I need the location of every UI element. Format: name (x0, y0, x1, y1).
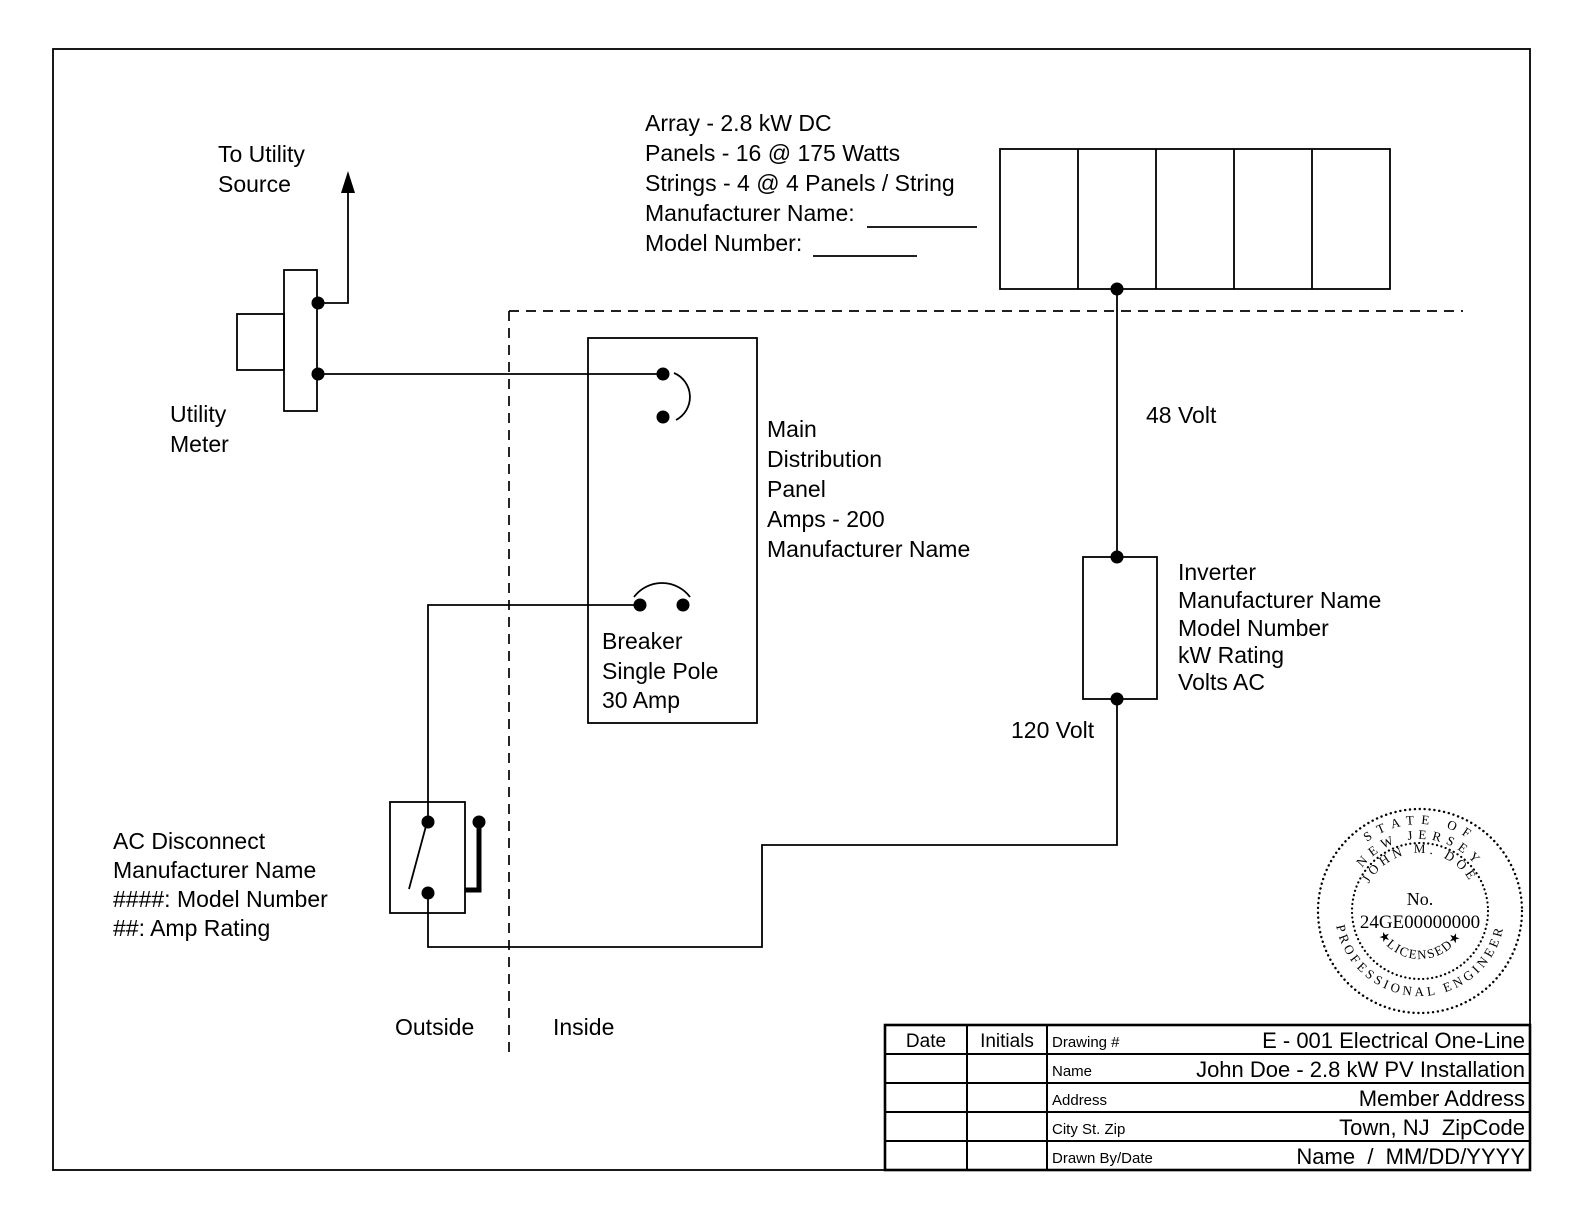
title-block-date-header: Date (906, 1031, 946, 1052)
main-panel-note-line3: Panel (767, 476, 826, 502)
main-breaker-arc (674, 373, 690, 420)
to-utility-source-label-line2: Source (218, 171, 291, 197)
pv-breaker-arc (634, 583, 690, 597)
array-notes: Array - 2.8 kW DC Panels - 16 @ 175 Watt… (645, 110, 977, 256)
ac-disconnect-symbol (390, 802, 486, 913)
stamp-license-number: 24GE00000000 (1360, 912, 1480, 933)
to-utility-source-label-line1: To Utility (218, 141, 305, 167)
main-panel-note-line1: Main (767, 416, 817, 442)
title-block-label-address: Address (1052, 1092, 1107, 1109)
title-block-label-drawing: Drawing # (1052, 1034, 1120, 1051)
title-block-initials-header: Initials (980, 1031, 1034, 1052)
engineer-stamp: STATE OF NEW JERSEY JOHN M. DOE No. 24GE… (1318, 809, 1522, 1013)
inverter-note-line2: Manufacturer Name (1178, 587, 1381, 613)
utility-meter-label-line1: Utility (170, 401, 227, 427)
pv-breaker-dot-right (677, 599, 690, 612)
arrowhead-up-icon (341, 171, 355, 193)
title-block-label-name: Name (1052, 1063, 1092, 1080)
main-panel-note-line2: Distribution (767, 446, 882, 472)
array-note-line4: Manufacturer Name: (645, 200, 855, 226)
breaker-note-line2: Single Pole (602, 658, 718, 684)
electrical-one-line-drawing: Outside Inside Utility Meter To Utility … (0, 0, 1584, 1224)
to-utility-arrow (318, 171, 355, 303)
title-block-value-address: Member Address (1359, 1086, 1525, 1111)
inverter-note-line1: Inverter (1178, 559, 1256, 585)
ac-disconnect-notes: AC Disconnect Manufacturer Name ####: Mo… (113, 828, 328, 941)
main-breaker-dot-top (657, 368, 670, 381)
inverter-note-line4: kW Rating (1178, 642, 1284, 668)
utility-feed-wire (318, 193, 348, 303)
disconnect-terminal-dot-bottom (422, 887, 435, 900)
title-block-value-city: Town, NJ ZipCode (1339, 1115, 1525, 1140)
title-block-value-drawing: E - 001 Electrical One-Line (1262, 1028, 1525, 1053)
inverter-note-line5: Volts AC (1178, 669, 1265, 695)
inverter-terminal-dot-top (1111, 551, 1124, 564)
utility-meter-symbol (237, 270, 325, 411)
disconnect-handle-bracket (465, 826, 479, 890)
inverter-outline (1083, 557, 1157, 699)
array-note-line2: Panels - 16 @ 175 Watts (645, 140, 900, 166)
array-note-line5: Model Number: (645, 230, 802, 256)
stamp-no-label: No. (1407, 889, 1434, 909)
pv-array-symbol (1000, 149, 1390, 296)
meter-body (284, 270, 317, 411)
breaker-note-line1: Breaker (602, 628, 683, 654)
array-note-line1: Array - 2.8 kW DC (645, 110, 832, 136)
breaker-note-line3: 30 Amp (602, 687, 680, 713)
inverter-notes: Inverter Manufacturer Name Model Number … (1178, 559, 1381, 695)
ac-voltage-label: 120 Volt (1011, 717, 1095, 743)
breaker-notes: Breaker Single Pole 30 Amp (602, 628, 718, 713)
ac-disconnect-note-line4: ##: Amp Rating (113, 915, 270, 941)
title-block-value-drawnby: Name / MM/DD/YYYY (1296, 1144, 1525, 1169)
array-note-line3: Strings - 4 @ 4 Panels / String (645, 170, 955, 196)
drawing-canvas: Outside Inside Utility Meter To Utility … (0, 0, 1584, 1224)
main-panel-notes: Main Distribution Panel Amps - 200 Manuf… (767, 416, 970, 562)
disconnect-switch-blade (409, 826, 426, 889)
meter-face (237, 314, 284, 370)
main-panel-note-line4: Amps - 200 (767, 506, 885, 532)
ac-disconnect-note-line1: AC Disconnect (113, 828, 266, 854)
inverter-note-line3: Model Number (1178, 615, 1329, 641)
outside-zone-label: Outside (395, 1014, 474, 1040)
inside-zone-label: Inside (553, 1014, 614, 1040)
title-block: Date Initials Drawing # E - 001 Electric… (885, 1025, 1530, 1170)
dc-voltage-label: 48 Volt (1146, 402, 1217, 428)
array-cell-dividers (1078, 149, 1312, 289)
main-panel-note-line5: Manufacturer Name (767, 536, 970, 562)
inverter-symbol (1083, 551, 1157, 706)
title-block-value-name: John Doe - 2.8 kW PV Installation (1196, 1057, 1525, 1082)
array-outline (1000, 149, 1390, 289)
ac-disconnect-note-line3: ####: Model Number (113, 886, 328, 912)
ac-disconnect-note-line2: Manufacturer Name (113, 857, 316, 883)
main-breaker-dot-bottom (657, 411, 670, 424)
title-block-label-city: City St. Zip (1052, 1121, 1125, 1138)
title-block-label-drawnby: Drawn By/Date (1052, 1150, 1153, 1167)
disconnect-terminal-dot-top (422, 816, 435, 829)
utility-meter-label-line2: Meter (170, 431, 229, 457)
